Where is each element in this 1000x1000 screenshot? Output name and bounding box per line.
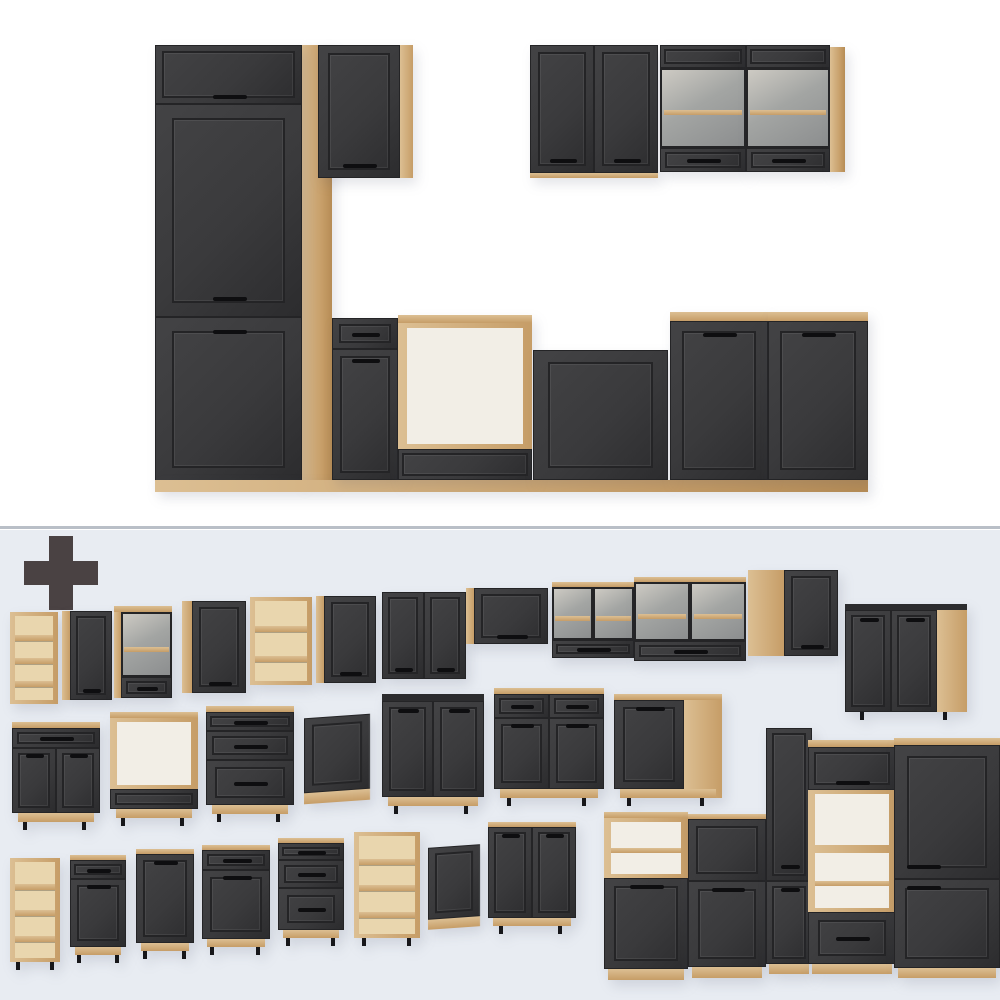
door-front — [614, 700, 684, 789]
door-front — [845, 610, 891, 712]
wood-side-panel — [316, 596, 324, 683]
fronts-area — [766, 728, 812, 964]
cabinet-foot — [331, 938, 335, 946]
door-front — [688, 881, 766, 967]
front-frame — [481, 594, 541, 638]
door-front — [532, 827, 576, 918]
cabinet-foot — [464, 806, 468, 814]
door-handle — [223, 876, 252, 880]
fronts-area — [250, 597, 312, 685]
front-frame — [172, 331, 285, 468]
glass-door — [552, 587, 593, 640]
wood-shelf — [15, 936, 55, 942]
fronts-area — [318, 45, 400, 178]
tall-oven-housing — [808, 740, 896, 974]
wood-side-panel — [684, 694, 722, 798]
dishwasher-front-panel-60 — [304, 714, 370, 805]
base-drawer-two-door-60 — [12, 722, 100, 822]
front-frame — [548, 362, 653, 468]
open-interior — [407, 328, 523, 444]
wall-open-shelf-narrow — [10, 612, 58, 704]
drawer-front — [12, 728, 100, 748]
open-compartment — [398, 323, 532, 449]
drawer-front — [278, 888, 344, 930]
door-front — [891, 610, 937, 712]
fronts-area — [614, 700, 684, 789]
door-front — [549, 718, 604, 789]
plinth-board — [388, 797, 478, 806]
door-handle — [209, 682, 232, 686]
cabinet-foot — [82, 822, 86, 830]
wall-cabinet-40 — [62, 611, 112, 700]
door-handle — [546, 834, 564, 838]
cabinet-foot — [394, 806, 398, 814]
fronts-area — [70, 611, 112, 700]
door-front — [494, 718, 549, 789]
wood-shelf — [15, 658, 53, 664]
corner-base-cabinet — [845, 604, 967, 712]
wood-shelf — [255, 626, 307, 632]
wood-side-panel — [937, 604, 967, 712]
front-frame — [172, 118, 285, 303]
wood-side-panel — [748, 570, 784, 656]
fronts-area — [332, 318, 398, 480]
door-front — [604, 878, 688, 969]
corner-wall-cabinet — [748, 570, 838, 656]
base-door-left-assembled — [670, 312, 768, 480]
carcass-top-edge — [808, 740, 896, 747]
door-handle — [907, 886, 941, 890]
cabinet-foot — [77, 955, 81, 963]
fronts-area — [634, 582, 746, 661]
open-interior — [117, 722, 191, 785]
open-shelf-unit — [10, 612, 58, 704]
oven-housing-assembled — [398, 315, 532, 480]
wood-side-panel — [62, 611, 70, 700]
front-frame — [538, 832, 570, 913]
door-handle — [772, 159, 806, 163]
base-open-shelf-30 — [10, 858, 60, 962]
open-compartment — [808, 849, 896, 912]
door-front — [488, 827, 532, 918]
door-handle — [577, 648, 611, 652]
front-frame — [501, 724, 542, 783]
wood-shelf — [611, 848, 681, 853]
open-compartment — [110, 718, 198, 789]
front-frame — [780, 331, 856, 470]
fronts-area — [202, 850, 270, 939]
fronts-area — [10, 612, 58, 704]
drawer-front — [332, 318, 398, 349]
cabinet-foot — [558, 926, 562, 934]
fronts-area — [70, 860, 126, 947]
kitchen-plinth-run — [155, 480, 868, 492]
glass-shelf — [694, 614, 743, 619]
door-front — [474, 588, 548, 644]
drawer-front — [121, 677, 172, 698]
plinth-board — [692, 967, 762, 978]
fronts-area — [354, 832, 420, 938]
glass-shelf — [124, 647, 168, 652]
door-handle — [87, 869, 111, 873]
front-frame — [905, 888, 989, 959]
front-frame — [772, 886, 806, 959]
fronts-area — [12, 728, 100, 813]
carcass-top-edge — [670, 312, 768, 321]
door-handle — [298, 851, 326, 855]
door-handle — [801, 645, 824, 649]
open-top-rim — [382, 694, 484, 701]
glass-shelf — [555, 616, 590, 621]
plinth-board — [530, 173, 658, 178]
cabinet-foot — [507, 798, 511, 806]
front-frame — [791, 576, 831, 650]
section-divider-line — [0, 526, 1000, 529]
door-handle — [213, 297, 247, 301]
drawer-front — [549, 694, 604, 718]
wall-glass-cabinet-50 — [114, 606, 172, 698]
cabinet-foot — [23, 822, 27, 830]
front-frame — [18, 753, 50, 808]
base-three-drawer-40 — [278, 838, 344, 938]
fronts-area — [552, 587, 634, 658]
panel-front — [533, 350, 668, 480]
front-frame — [664, 49, 742, 64]
wood-shelf — [255, 656, 307, 662]
plinth-board — [116, 809, 192, 818]
door-handle — [836, 781, 870, 785]
panel-front — [304, 714, 370, 794]
door-front — [433, 701, 484, 797]
front-frame — [162, 51, 295, 98]
door-front — [192, 601, 246, 693]
wood-side-panel — [182, 601, 192, 693]
door-handle — [630, 885, 664, 889]
tall-fridge-housing — [894, 738, 1000, 978]
cabinet-foot — [700, 798, 704, 806]
base-door-right-assembled — [768, 312, 868, 480]
front-frame — [494, 832, 526, 913]
door-handle — [636, 707, 665, 711]
front-frame — [897, 615, 931, 707]
door-handle — [83, 689, 101, 693]
door-handle — [614, 159, 641, 163]
plinth-board — [769, 964, 809, 974]
panel-front — [688, 819, 766, 881]
front-frame — [602, 52, 650, 166]
cabinet-foot — [217, 814, 221, 822]
front-frame — [614, 886, 678, 961]
front-frame — [440, 707, 477, 791]
tall-pantry-cabinet — [766, 728, 812, 974]
door-handle — [26, 754, 44, 758]
wood-side-panel — [466, 588, 474, 644]
plinth-board — [18, 813, 94, 822]
open-interior — [815, 794, 889, 845]
door-handle — [298, 908, 326, 912]
front-frame — [389, 707, 426, 791]
drawer-front — [278, 843, 344, 860]
door-handle — [340, 672, 362, 676]
door-handle — [449, 709, 470, 713]
door-front — [530, 45, 594, 173]
door-handle — [781, 888, 800, 892]
door-handle — [87, 885, 111, 889]
front-frame — [76, 616, 106, 695]
fronts-area — [155, 480, 868, 492]
door-handle — [497, 635, 528, 639]
cabinet-foot — [256, 947, 260, 955]
drawer-front — [202, 850, 270, 870]
open-shelf-unit — [250, 597, 312, 685]
fronts-area — [533, 350, 668, 480]
wood-shelf — [359, 859, 415, 865]
fronts-area — [155, 45, 302, 482]
front-frame — [312, 721, 362, 785]
wood-side-panel — [400, 45, 413, 178]
front-frame — [772, 733, 806, 876]
wall-cabinet-60 — [182, 601, 246, 693]
fronts-area — [192, 601, 246, 693]
glass-door — [660, 68, 746, 148]
door-handle — [802, 333, 836, 337]
door-handle — [234, 782, 268, 786]
fronts-area — [530, 45, 658, 173]
wall-cabinet-60b — [316, 596, 376, 683]
door-handle — [40, 737, 74, 741]
door-handle — [502, 834, 520, 838]
wall-cabinet-single-assembled — [318, 45, 413, 178]
cabinet-foot — [143, 951, 147, 959]
panel-front — [398, 449, 532, 480]
base-single-door-30 — [136, 849, 194, 951]
cabinet-foot — [860, 712, 864, 720]
fronts-area — [830, 47, 845, 172]
wood-shelf — [815, 881, 889, 886]
cabinet-foot — [16, 962, 20, 970]
door-handle — [712, 888, 745, 892]
front-frame — [435, 851, 473, 914]
fronts-area — [10, 858, 60, 962]
plinth-board — [212, 805, 288, 814]
plinth-board — [500, 789, 598, 798]
door-handle — [511, 705, 534, 709]
door-front — [155, 317, 302, 482]
front-frame — [77, 885, 119, 941]
fronts-area — [136, 854, 194, 943]
fronts-area — [398, 323, 532, 480]
plus-vertical-bar — [49, 536, 73, 610]
door-handle — [781, 865, 800, 869]
panel-front — [746, 45, 830, 68]
front-frame — [115, 793, 193, 805]
door-handle — [550, 159, 577, 163]
glass-shelf — [596, 616, 631, 621]
drawer-front — [552, 640, 634, 658]
door-front — [155, 45, 302, 104]
plinth-board — [898, 968, 996, 978]
door-handle — [298, 873, 326, 877]
fronts-area — [324, 596, 376, 683]
drawer-front — [660, 148, 746, 172]
wall-glass-side-panel — [830, 47, 845, 172]
base-drawer-door-30 — [70, 855, 126, 955]
fronts-area — [474, 588, 548, 644]
drawer-front — [206, 760, 294, 805]
fronts-area — [278, 843, 344, 930]
door-front — [768, 321, 868, 480]
door-handle — [213, 95, 247, 99]
door-handle — [213, 330, 247, 334]
door-handle — [154, 861, 178, 865]
door-handle — [223, 859, 252, 863]
door-front — [318, 45, 400, 178]
door-front — [766, 881, 812, 964]
plinth-board — [608, 969, 684, 980]
glass-door — [690, 582, 746, 641]
fronts-area — [488, 827, 576, 918]
wall-glass-cabinet-left-assembled — [660, 45, 746, 172]
front-frame — [698, 889, 756, 959]
plinth-board — [283, 930, 339, 938]
fronts-area — [110, 718, 198, 809]
front-frame — [328, 53, 390, 170]
cabinet-foot — [50, 962, 54, 970]
glass-door — [746, 68, 830, 148]
wood-filler — [155, 480, 868, 492]
panel-front — [660, 45, 746, 68]
plinth-board — [75, 947, 121, 955]
door-handle — [70, 754, 88, 758]
door-front — [70, 611, 112, 700]
glass-shelf — [664, 110, 741, 115]
cabinet-foot — [499, 926, 503, 934]
midi-cabinet-60 — [688, 814, 766, 978]
wood-shelf — [359, 912, 415, 918]
front-frame — [340, 356, 390, 473]
door-front — [766, 728, 812, 881]
wall-glass-double-80 — [552, 582, 634, 658]
front-frame — [430, 597, 460, 674]
plinth-board — [207, 939, 265, 947]
door-handle — [566, 724, 589, 728]
front-frame — [538, 52, 586, 166]
wood-shelf — [15, 681, 53, 687]
wood-shelf — [359, 885, 415, 891]
open-compartment — [604, 818, 688, 878]
door-front — [594, 45, 658, 173]
fronts-area — [670, 321, 768, 480]
door-front — [894, 879, 1000, 968]
drawer-front — [634, 641, 746, 661]
front-frame — [62, 753, 94, 808]
fronts-area — [808, 747, 896, 964]
fronts-area — [894, 745, 1000, 968]
door-handle — [234, 745, 268, 749]
cabinet-foot — [121, 818, 125, 826]
base-drawer-door-40 — [202, 845, 270, 947]
base-two-drawer-two-door-80 — [494, 688, 604, 798]
glass-shelf — [750, 110, 825, 115]
plinth-board — [812, 964, 892, 974]
panel-front — [428, 844, 480, 920]
door-front — [332, 349, 398, 480]
door-handle — [703, 333, 737, 337]
base-single-door-80 — [614, 694, 722, 798]
front-frame — [623, 707, 675, 782]
front-frame — [750, 49, 826, 64]
front-frame — [402, 453, 528, 476]
door-handle — [352, 359, 380, 363]
door-handle — [511, 724, 534, 728]
door-handle — [398, 709, 419, 713]
plinth-board — [141, 943, 189, 951]
drawer-front — [206, 712, 294, 731]
door-front — [784, 570, 838, 656]
door-front — [382, 701, 433, 797]
door-handle — [687, 159, 721, 163]
fronts-area — [121, 612, 172, 698]
wood-shelf — [15, 910, 55, 916]
front-frame — [907, 756, 987, 868]
base-double-door-60 — [488, 822, 576, 926]
front-frame — [199, 607, 239, 687]
carcass-top-edge — [768, 312, 868, 321]
oven-base-cabinet — [110, 712, 198, 818]
dishwasher-front-panel-45 — [428, 844, 480, 930]
cabinet-foot — [276, 814, 280, 822]
door-handle — [674, 650, 708, 654]
product-image-canvas — [0, 0, 1000, 1000]
door-front — [670, 321, 768, 480]
flap-front — [808, 747, 896, 790]
door-front — [56, 748, 100, 813]
drawer-front — [206, 731, 294, 760]
door-handle — [566, 705, 589, 709]
cabinet-foot — [627, 798, 631, 806]
fronts-area — [304, 714, 370, 794]
fronts-area — [688, 819, 766, 967]
fronts-area — [660, 45, 746, 172]
cabinet-foot — [180, 818, 184, 826]
wood-filler — [830, 47, 845, 172]
door-front — [424, 592, 466, 679]
plinth-board — [620, 789, 716, 798]
front-frame — [210, 877, 262, 932]
front-frame — [696, 826, 758, 874]
glass-door — [121, 612, 172, 677]
door-handle — [137, 687, 158, 691]
sink-base-80 — [382, 694, 484, 806]
door-front — [382, 592, 424, 679]
door-handle — [860, 618, 879, 622]
drawer-front — [278, 860, 344, 888]
wall-open-shelf-60 — [250, 597, 312, 685]
door-front — [136, 854, 194, 943]
fronts-area — [604, 818, 688, 969]
carcass-top-edge — [398, 315, 532, 323]
door-front — [155, 104, 302, 317]
wood-shelf — [15, 635, 53, 641]
door-handle — [234, 721, 268, 725]
door-handle — [352, 333, 380, 337]
cabinet-foot — [115, 955, 119, 963]
fronts-area — [784, 570, 838, 656]
door-front — [324, 596, 376, 683]
base-drawer-door-assembled — [332, 318, 398, 480]
carcass-top-edge — [894, 738, 1000, 745]
fronts-area — [382, 592, 466, 679]
